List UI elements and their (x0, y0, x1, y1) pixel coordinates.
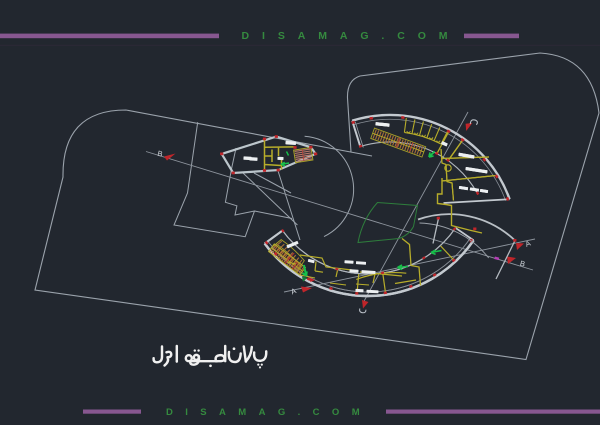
svg-text:DISAMAG.COM: DISAMAG.COM (166, 407, 372, 418)
svg-text:DISAMAG.COM: DISAMAG.COM (242, 30, 461, 42)
